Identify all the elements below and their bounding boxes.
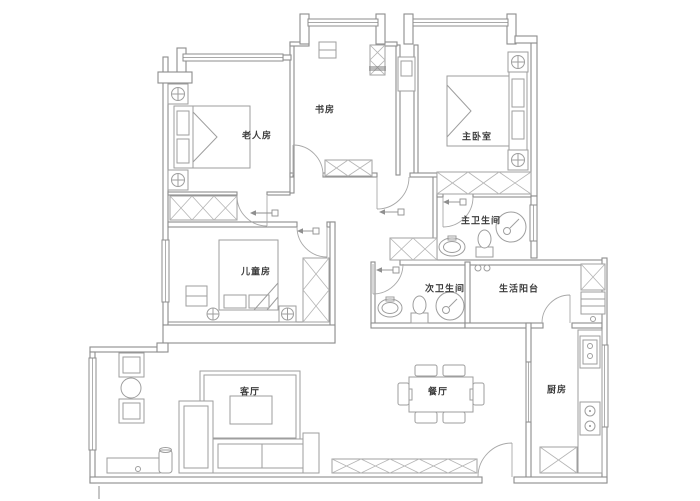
duct-shaft-icon (369, 45, 386, 75)
door-entry (478, 443, 512, 477)
arrow-icon (379, 209, 404, 215)
window-living-left (89, 358, 96, 450)
arrow-icon (250, 210, 278, 216)
toilet-icon (411, 296, 428, 323)
kitchen-sink-icon (580, 336, 600, 368)
hall-closet-icon (390, 238, 437, 260)
balcony-cabinet-icon (581, 264, 605, 290)
room-label-second-bath: 次卫生间 (425, 282, 465, 295)
door-kitchen-balcony (542, 295, 570, 323)
arrow-icon (443, 199, 466, 205)
side-table-icon (121, 378, 141, 398)
entry-cabinet-icon (332, 459, 477, 473)
room-label-kitchen: 厨房 (547, 383, 567, 396)
tv-cabinet-icon (107, 448, 172, 474)
armchair-icon (119, 399, 144, 423)
sink-icon (439, 236, 465, 256)
bed-elder-icon (174, 106, 250, 168)
study-shelf-icon (325, 160, 372, 176)
sliding-door-kitchen (526, 362, 531, 422)
room-label-living-room: 客厅 (240, 385, 260, 398)
coffee-table-icon (230, 396, 272, 424)
sink-icon (378, 297, 402, 317)
room-label-children-room: 儿童房 (241, 265, 271, 278)
toilet-icon (476, 230, 493, 257)
room-label-master-bedroom: 主卧室 (462, 130, 492, 143)
window-study-top (308, 19, 378, 26)
floor-plan-drawing (0, 0, 700, 501)
stove-icon (580, 402, 600, 435)
wardrobe-children-icon (303, 258, 329, 322)
arrow-icon (297, 228, 319, 234)
window-masterbath-right (530, 205, 537, 241)
balcony-sink-cabinet-icon (581, 292, 605, 322)
window-elder-top (183, 54, 283, 61)
tiny-watermark-smudge (369, 66, 386, 71)
wardrobe-elder-icon (170, 196, 237, 220)
room-label-dining-room: 餐厅 (428, 385, 448, 398)
armchair-icon (119, 353, 144, 377)
wardrobe-master-icon (437, 172, 531, 194)
window-master-top (413, 19, 508, 26)
room-label-study: 书房 (315, 103, 335, 116)
window-children-left (162, 240, 169, 302)
room-label-elder-room: 老人房 (242, 129, 272, 142)
study-cabinet-icon (319, 42, 415, 91)
desk-icon (186, 286, 207, 306)
lamp-icon (207, 308, 219, 320)
door-study (293, 145, 323, 175)
lamp-icon (279, 306, 296, 322)
room-label-master-bath: 主卫生间 (461, 214, 501, 227)
door-second-bath (373, 264, 403, 294)
floor-plan-canvas: 老人房 书房 主卧室 主卫生间 儿童房 次卫生间 生活阳台 客厅 餐厅 厨房 (0, 0, 700, 501)
fridge-icon (540, 447, 577, 473)
washer-taps-icon (475, 265, 490, 271)
arrow-icon (376, 267, 399, 273)
room-label-utility-balcony: 生活阳台 (499, 282, 539, 295)
shower-icon (436, 292, 464, 320)
door-master-bedroom (377, 177, 409, 209)
